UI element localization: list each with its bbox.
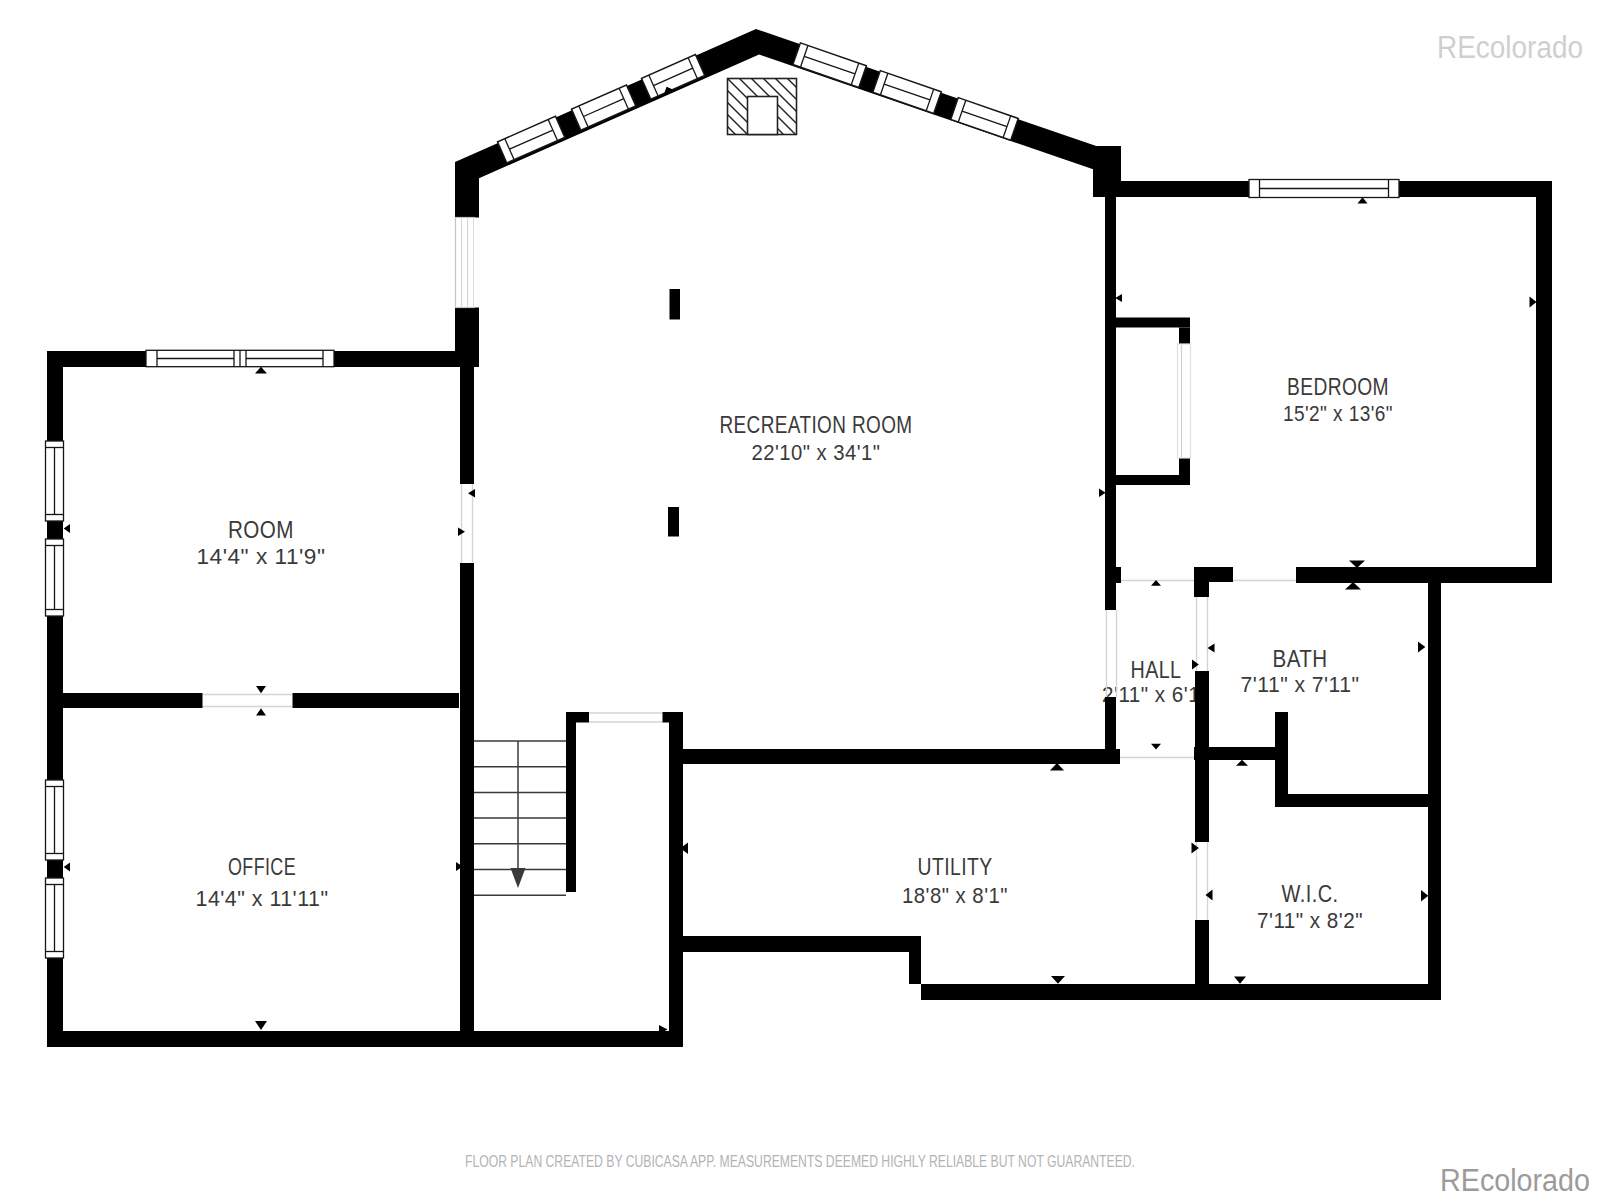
svg-text:2'11" x 6'1": 2'11" x 6'1" (1102, 682, 1208, 707)
svg-text:ROOM: ROOM (228, 516, 294, 543)
svg-text:OFFICE: OFFICE (228, 853, 296, 880)
svg-text:15'2" x 13'6": 15'2" x 13'6" (1283, 401, 1393, 426)
svg-text:14'4" x 11'11": 14'4" x 11'11" (196, 886, 329, 911)
svg-text:W.I.C.: W.I.C. (1282, 880, 1339, 907)
svg-text:14'4" x 11'9": 14'4" x 11'9" (197, 544, 326, 569)
svg-text:REcolorado: REcolorado (1437, 30, 1583, 65)
svg-text:REcolorado: REcolorado (1440, 1163, 1590, 1198)
svg-text:22'10" x 34'1": 22'10" x 34'1" (752, 440, 881, 465)
svg-text:18'8" x 8'1": 18'8" x 8'1" (902, 883, 1008, 908)
svg-text:RECREATION ROOM: RECREATION ROOM (720, 411, 913, 438)
svg-text:FLOOR PLAN CREATED BY CUBICASA: FLOOR PLAN CREATED BY CUBICASA APP. MEAS… (465, 1152, 1135, 1170)
svg-text:7'11" x 8'2": 7'11" x 8'2" (1257, 908, 1363, 933)
svg-text:BATH: BATH (1273, 645, 1328, 672)
svg-text:UTILITY: UTILITY (918, 853, 993, 880)
svg-text:7'11" x 7'11": 7'11" x 7'11" (1241, 672, 1360, 697)
svg-text:BEDROOM: BEDROOM (1287, 373, 1389, 400)
svg-text:HALL: HALL (1131, 656, 1182, 683)
